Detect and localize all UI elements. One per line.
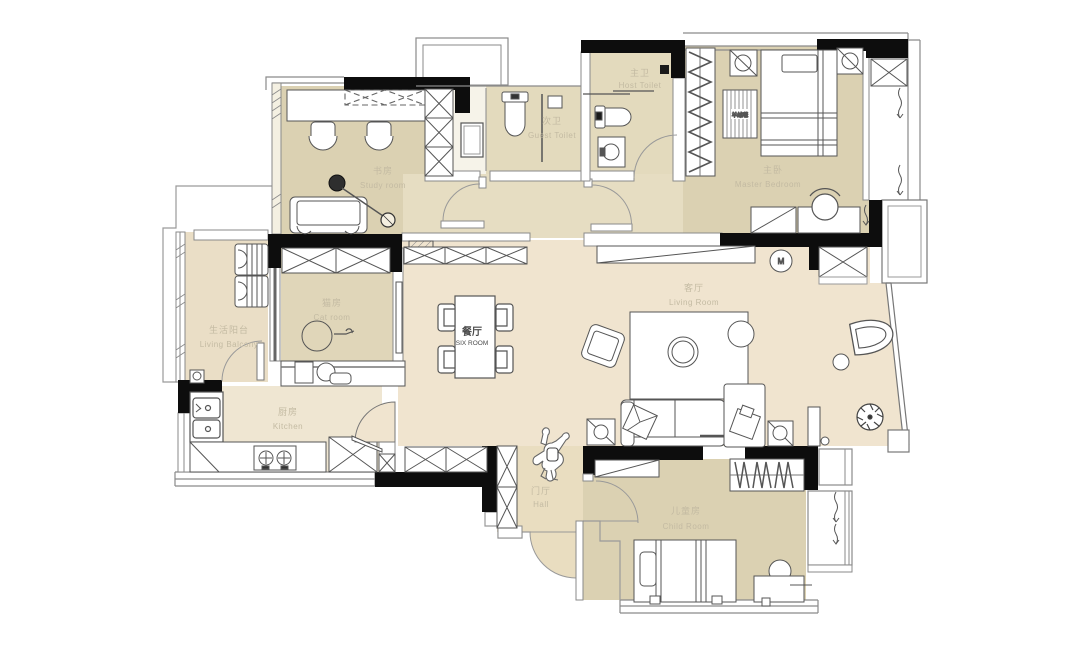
svg-text:客厅: 客厅 [684, 282, 704, 293]
svg-text:Master Bedroom: Master Bedroom [735, 180, 801, 189]
svg-text:Hall: Hall [533, 500, 549, 509]
svg-text:Living Room: Living Room [669, 298, 719, 307]
svg-text:生活阳台: 生活阳台 [209, 324, 249, 335]
svg-text:门厅: 门厅 [531, 485, 551, 496]
svg-text:厨房: 厨房 [278, 406, 298, 417]
svg-text:SIX ROOM: SIX ROOM [456, 340, 489, 347]
svg-text:餐厅: 餐厅 [461, 325, 482, 338]
svg-text:羊绒毯: 羊绒毯 [732, 111, 749, 119]
svg-text:Kitchen: Kitchen [273, 422, 303, 431]
svg-text:Cat room: Cat room [314, 313, 351, 322]
svg-text:主卫: 主卫 [630, 67, 650, 78]
svg-text:次卫: 次卫 [542, 115, 562, 126]
svg-text:M: M [778, 257, 785, 266]
svg-text:Host Toilet: Host Toilet [619, 81, 662, 90]
svg-text:Guest Toilet: Guest Toilet [528, 131, 576, 140]
svg-text:主卧: 主卧 [763, 164, 783, 175]
svg-text:Living Balcony: Living Balcony [200, 340, 259, 349]
svg-text:儿童房: 儿童房 [671, 505, 701, 516]
svg-text:Study room: Study room [360, 181, 406, 190]
svg-text:书房: 书房 [373, 165, 393, 176]
svg-text:Child Room: Child Room [663, 522, 710, 531]
svg-text:猫房: 猫房 [322, 297, 342, 308]
